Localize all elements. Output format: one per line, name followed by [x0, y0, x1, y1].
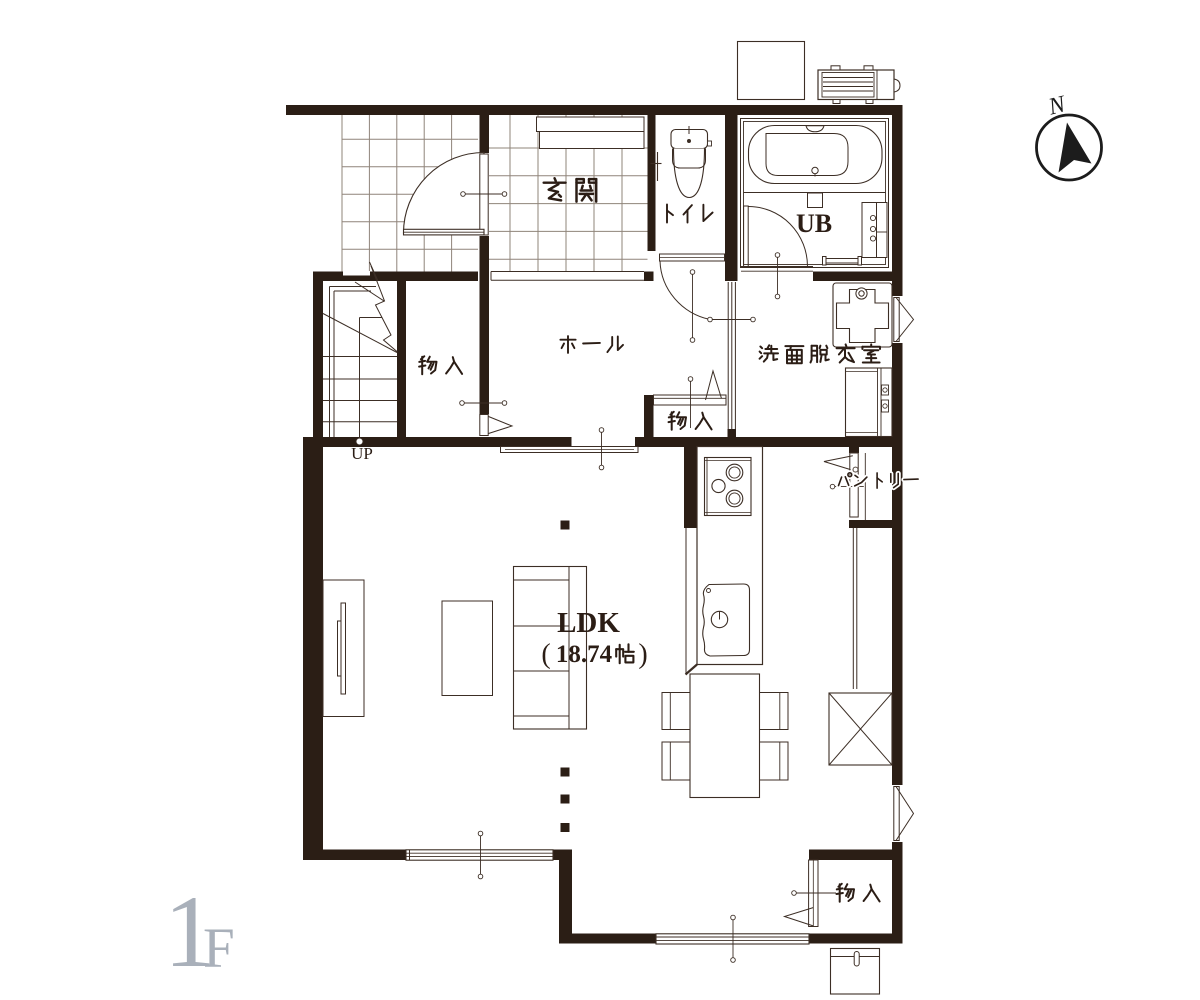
svg-text:UB: UB	[796, 209, 832, 238]
svg-text:LDK: LDK	[557, 607, 620, 639]
svg-text:18.74: 18.74	[556, 641, 613, 668]
svg-text:(: (	[541, 639, 550, 670]
svg-text:UP: UP	[351, 444, 373, 463]
svg-text:): )	[638, 639, 647, 670]
svg-text:F: F	[203, 917, 235, 980]
svg-text:N: N	[1045, 91, 1070, 121]
